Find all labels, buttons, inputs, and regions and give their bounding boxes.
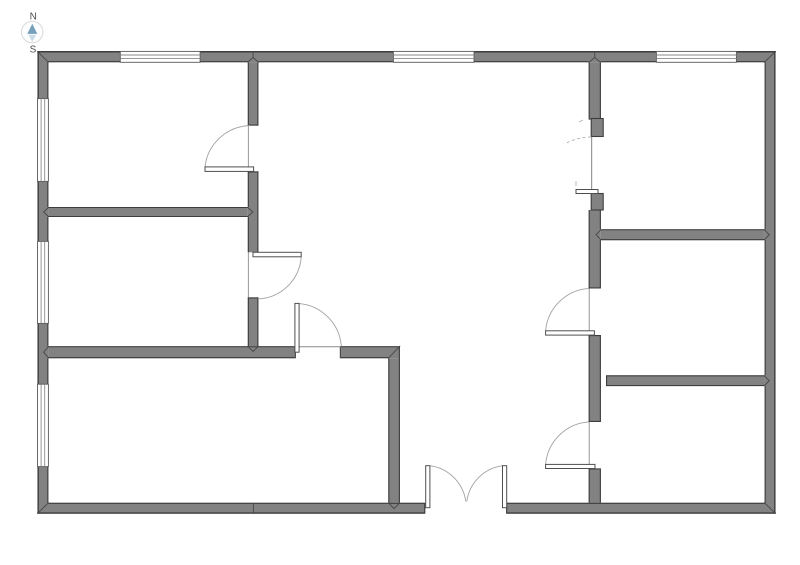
svg-text:N: N — [30, 12, 37, 23]
svg-text:S: S — [30, 45, 37, 56]
